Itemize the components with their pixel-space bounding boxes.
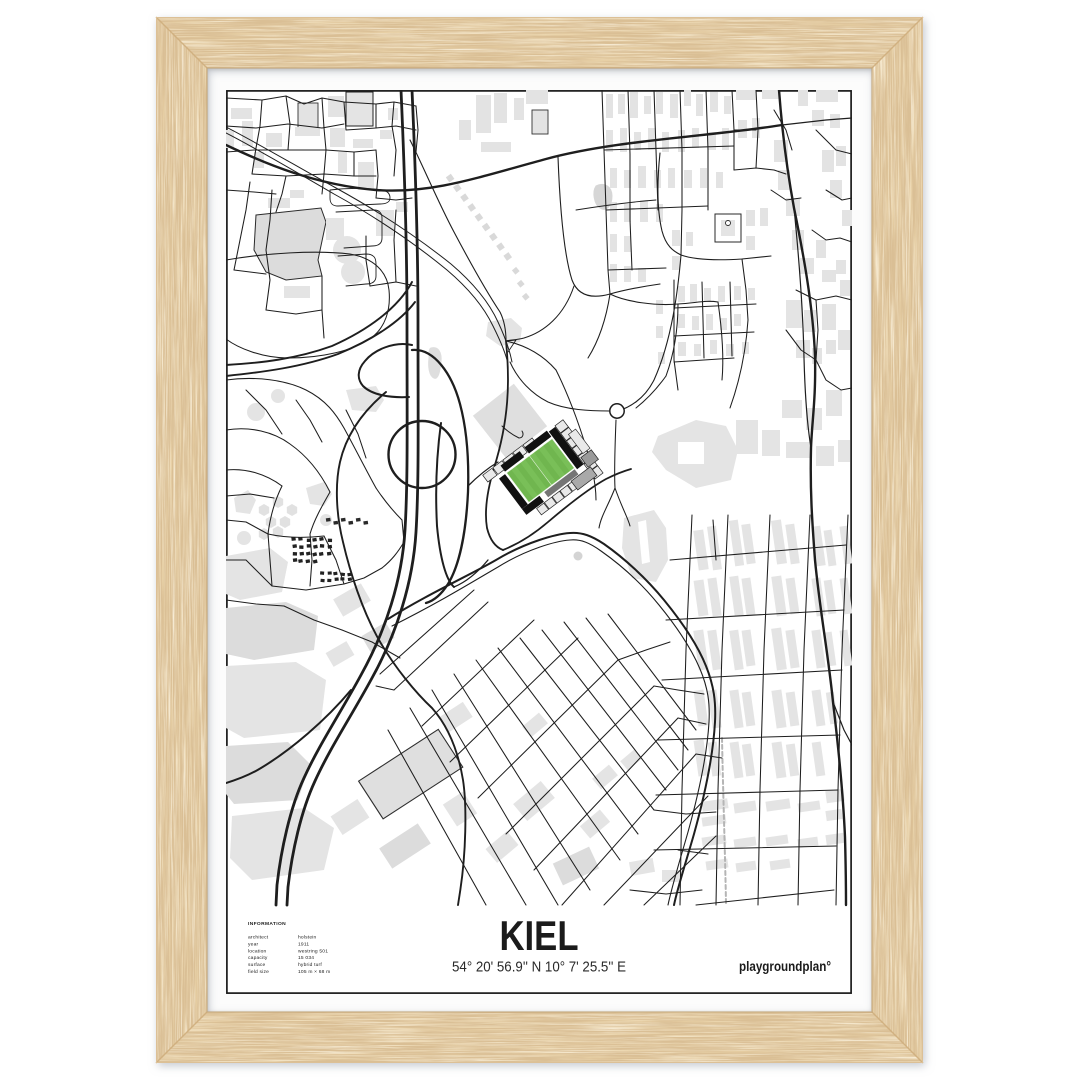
svg-text:INFORMATION: INFORMATION bbox=[248, 921, 286, 927]
svg-text:westring 501: westring 501 bbox=[298, 948, 328, 954]
svg-text:54° 20' 56.9'' N 10° 7' 25.5': 54° 20' 56.9'' N 10° 7' 25.5'' E bbox=[452, 960, 626, 976]
svg-text:hybrid turf: hybrid turf bbox=[298, 962, 322, 968]
svg-text:field size: field size bbox=[248, 969, 269, 975]
svg-text:playgroundplan°: playgroundplan° bbox=[739, 959, 831, 974]
svg-text:KIEL: KIEL bbox=[500, 912, 579, 959]
svg-text:holstein: holstein bbox=[298, 935, 317, 941]
svg-text:15 034: 15 034 bbox=[298, 955, 314, 961]
svg-text:1911: 1911 bbox=[298, 941, 309, 947]
svg-text:location: location bbox=[248, 948, 267, 954]
svg-text:year: year bbox=[248, 941, 258, 947]
svg-text:architect: architect bbox=[248, 935, 269, 941]
svg-text:surface: surface bbox=[248, 962, 266, 968]
svg-text:105 m × 68 m: 105 m × 68 m bbox=[298, 969, 330, 975]
svg-text:capacity: capacity bbox=[248, 955, 268, 961]
